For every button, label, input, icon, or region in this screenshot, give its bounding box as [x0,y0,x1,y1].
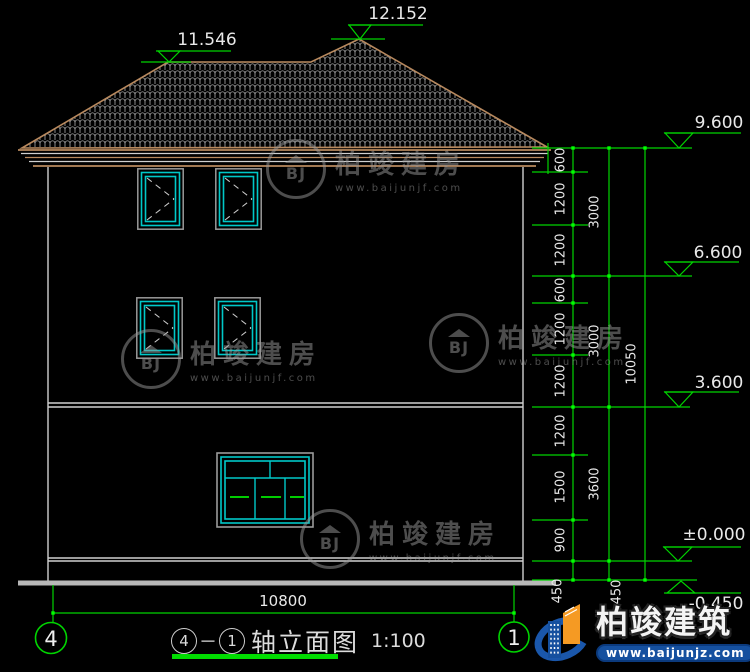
level-label-floor2: 3.600 [695,373,744,393]
axis-bubble-right: 1 [507,626,520,650]
dim-label-overall-height: 10050 [625,343,640,384]
logo-text-block: 柏竣建筑 www.baijunjz.com [596,597,750,662]
watermark-roof-icon [140,345,162,353]
watermark-logo-circle: BJ [121,329,181,389]
cad-linework [0,0,750,672]
level-label-ridge-low: 11.546 [177,30,236,50]
title-axis-end: 1 [219,628,245,654]
title-scale: 1:100 [371,630,426,652]
watermark: BJ 柏竣建房 www.baijunjf.com [300,509,501,569]
logo-url: www.baijunjz.com [596,644,750,662]
watermark-roof-icon [448,329,470,337]
dim-label: 1200 [554,414,569,447]
dim-label: 3000 [588,324,603,357]
watermark-monogram: BJ [141,354,161,373]
title-axis-start: 4 [171,628,197,654]
dim-label: 3000 [588,195,603,228]
dim-label: 1500 [554,470,569,503]
dim-label: 3600 [588,467,603,500]
title-separator: － [199,628,217,654]
dim-label: 600 [554,278,569,303]
watermark-roof-icon [319,525,341,533]
title-underline [172,654,338,659]
watermark-logo-circle: BJ [300,509,360,569]
watermark-logo-circle: BJ [429,313,489,373]
dim-label: 1200 [554,312,569,345]
dim-label: 900 [554,528,569,553]
level-label-eave: 9.600 [695,113,744,133]
watermark-monogram: BJ [320,534,340,553]
logo-icon [534,597,592,667]
watermark-url: www.baijunjf.com [369,553,501,564]
dim-label: 1200 [554,364,569,397]
dim-label: 600 [554,148,569,173]
logo-brand: 柏竣建筑 [596,597,750,643]
watermark-roof-icon [285,155,307,163]
level-label-zero: ±0.000 [683,525,746,545]
watermark-brand: 柏竣建房 [190,334,322,371]
level-label-ridge-main: 12.152 [368,4,427,24]
axis-bubble-left: 4 [44,627,57,651]
level-label-floor3: 6.600 [694,243,743,263]
elevation-drawing-canvas: BJ 柏竣建房 www.baijunjf.com BJ 柏竣建房 www.bai… [0,0,750,672]
dim-label: 1200 [554,182,569,215]
watermark-url: www.baijunjf.com [335,183,467,194]
watermark-brand: 柏竣建房 [335,144,467,181]
watermark: BJ 柏竣建房 www.baijunjf.com [121,329,322,389]
watermark-monogram: BJ [449,338,469,357]
roof-tiled-surface [22,39,547,148]
watermark-url: www.baijunjf.com [190,373,322,384]
ground-floor-window [217,453,313,527]
dim-label-overall-width: 10800 [259,592,307,610]
dim-label: 1200 [554,233,569,266]
watermark-logo-circle: BJ [266,139,326,199]
watermark-brand: 柏竣建房 [369,514,501,551]
company-logo: 柏竣建筑 www.baijunjz.com [534,597,750,667]
watermark-monogram: BJ [286,164,306,183]
watermark: BJ 柏竣建房 www.baijunjf.com [266,139,467,199]
